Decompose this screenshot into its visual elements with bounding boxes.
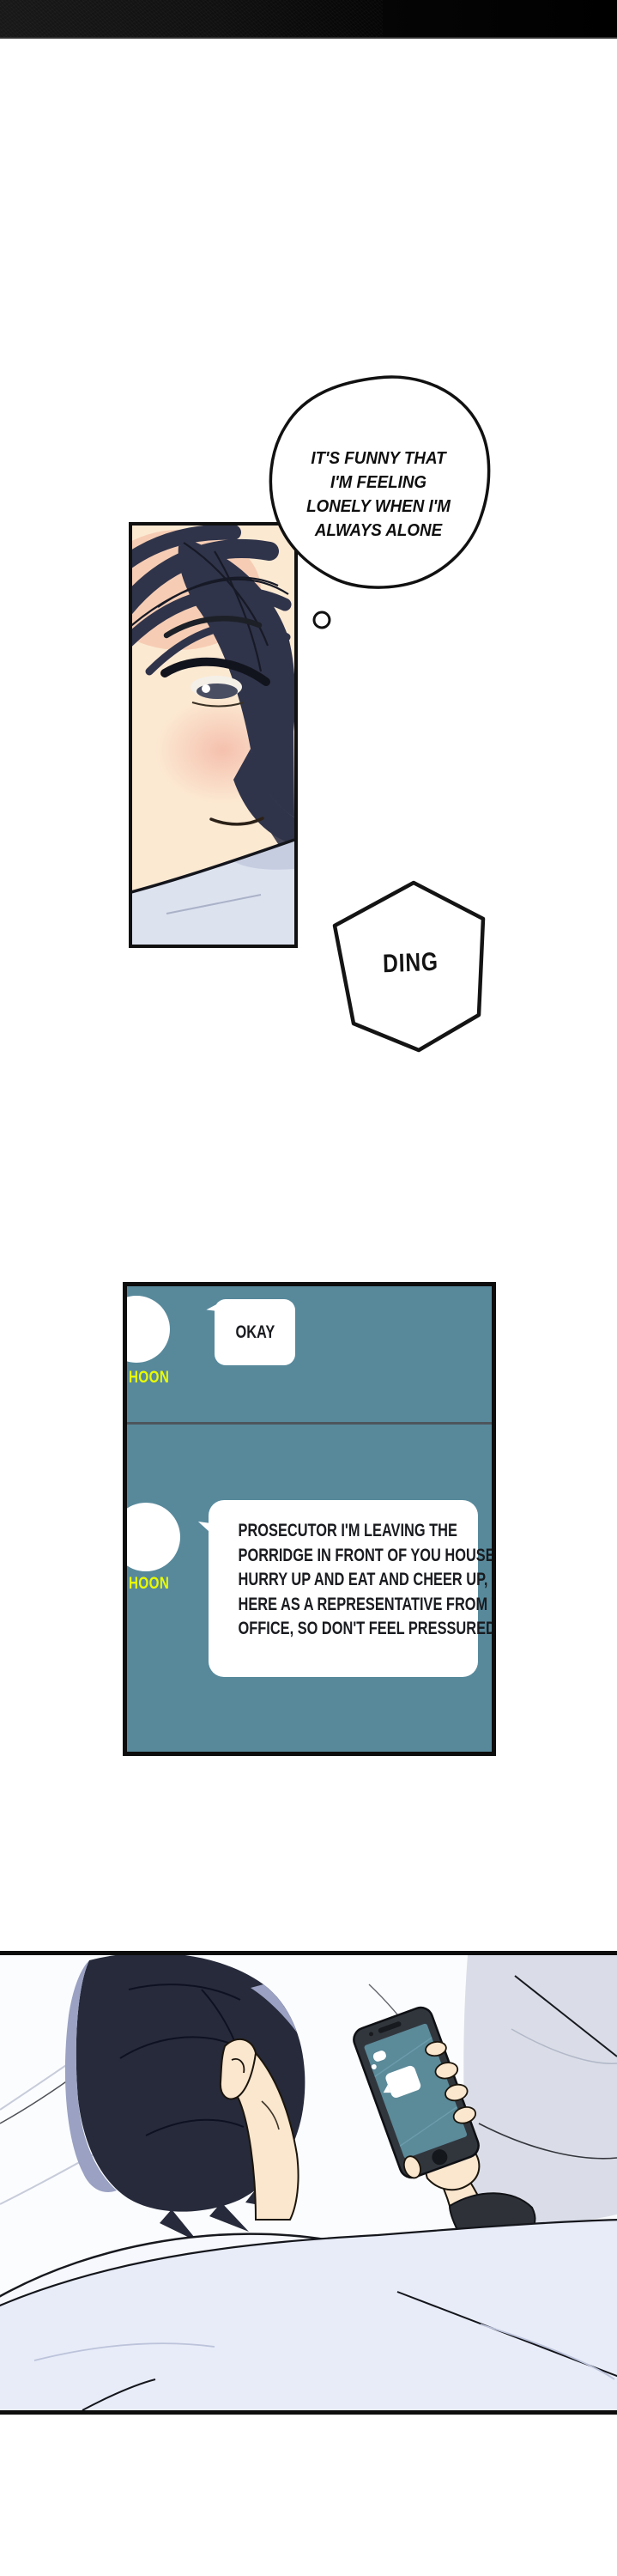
chat-message-bubble: OKAY [215, 1299, 295, 1365]
chat-message-line: OFFICE, SO DON'T FEEL PRESSURED ^^ [239, 1617, 449, 1642]
bubble-tail [197, 1522, 211, 1533]
thought-line: I'M FEELING [289, 471, 469, 495]
chat-message-bubble: PROSECUTOR I'M LEAVING THE PORRIDGE IN F… [209, 1500, 478, 1677]
thought-bubble-text: IT'S FUNNY THAT I'M FEELING LONELY WHEN … [283, 447, 474, 543]
chat-message-line: PROSECUTOR I'M LEAVING THE [239, 1519, 449, 1544]
chat-sender-name: HOON [129, 1369, 169, 1388]
bubble-tail [206, 1303, 222, 1318]
chat-divider [127, 1422, 492, 1425]
bed-scene-art [0, 1955, 617, 2410]
sfx-label: DING [329, 943, 492, 984]
film-grain-texture [0, 0, 383, 37]
thought-line: ALWAYS ALONE [289, 519, 469, 543]
chat-message-line: PORRIDGE IN FRONT OF YOU HOUSE, [239, 1544, 449, 1569]
thought-line: IT'S FUNNY THAT [289, 447, 469, 471]
comic-page: IT'S FUNNY THAT I'M FEELING LONELY WHEN … [0, 0, 617, 2576]
chat-panel: HOON OKAY HOON PROSECUTOR I'M LEAVING TH… [123, 1282, 496, 1756]
avatar [123, 1503, 180, 1571]
sfx-label-text: DING [382, 948, 439, 980]
top-panel-strip [0, 0, 617, 39]
chat-message-line: HERE AS A REPRESENTATIVE FROM THE [239, 1593, 449, 1618]
thought-line: LONELY WHEN I'M [289, 495, 469, 519]
thought-trail-dot [314, 612, 330, 628]
chat-message-text: OKAY [235, 1322, 275, 1343]
avatar [123, 1296, 170, 1363]
bed-scene-panel [0, 1951, 617, 2415]
gray-blanket [463, 1955, 617, 2224]
chat-message-line: HURRY UP AND EAT AND CHEER UP, I'M [239, 1568, 449, 1593]
chat-sender-name: HOON [129, 1575, 169, 1594]
